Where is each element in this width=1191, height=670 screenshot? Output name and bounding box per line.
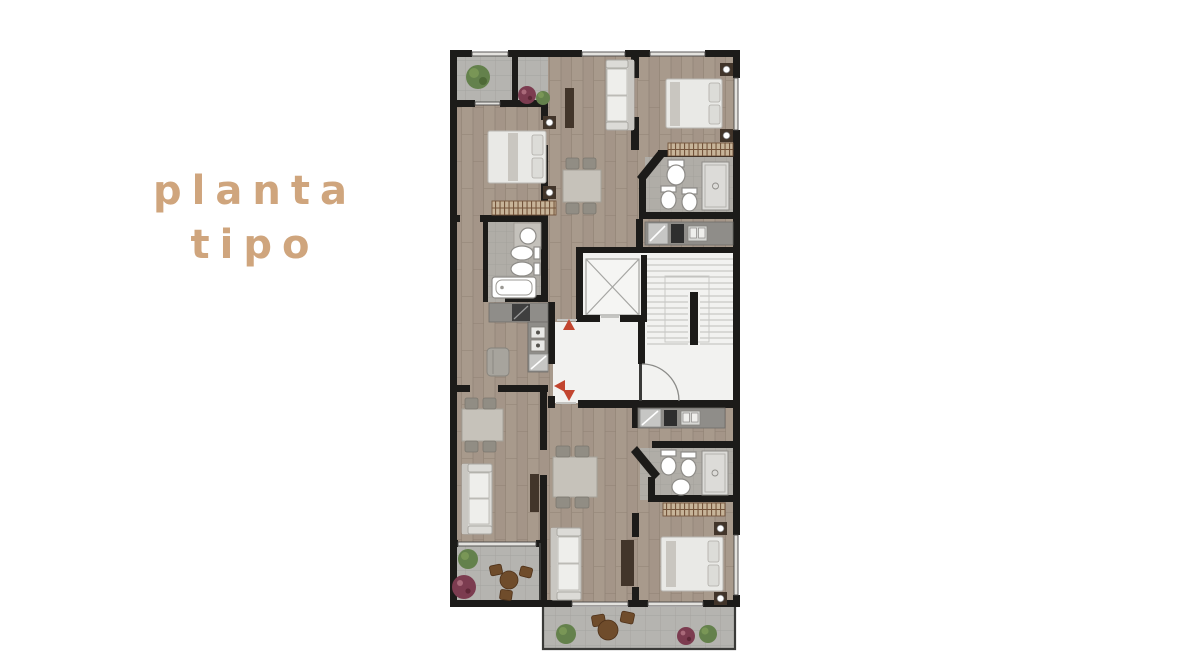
wall-terrace-bottom-a: [455, 100, 475, 107]
lamp: [723, 132, 730, 139]
plant-highlight: [469, 68, 479, 78]
sofa-left-cushion-a: [469, 473, 489, 498]
sofa-left-arm-a: [468, 464, 492, 472]
wall-core-north: [576, 247, 737, 253]
wall-terrace-divider: [512, 57, 518, 100]
sink-2: [667, 165, 685, 185]
wall-bed1-bottom-a: [455, 215, 460, 222]
door-leaf: [639, 364, 642, 401]
outdoor-chair: [620, 611, 635, 624]
plant-purple: [452, 575, 476, 599]
sofa-center-cushion-b: [558, 564, 579, 590]
wall-landing-east: [638, 322, 645, 364]
tv-console-left: [530, 474, 539, 512]
elevator: [586, 259, 639, 315]
toilet-3b-tank: [681, 452, 696, 458]
outdoor-chair: [499, 589, 512, 601]
sofa-upper-cushion-a: [607, 69, 627, 95]
wall-bath3-south: [650, 495, 733, 502]
plant-highlight: [559, 627, 567, 635]
sink-3: [672, 479, 690, 495]
toilet-2a: [661, 191, 676, 209]
sofa-left-back: [462, 464, 468, 534]
dining-chair: [575, 497, 589, 508]
toilet-3a: [661, 457, 676, 475]
wall-top-a: [450, 50, 472, 57]
plant: [458, 549, 478, 569]
dining-chair: [566, 203, 579, 214]
sink-basin: [699, 228, 706, 238]
window-bed3-right: [734, 535, 738, 595]
sink-basin: [690, 228, 697, 238]
lamp: [717, 525, 724, 532]
bidet-left: [511, 262, 533, 276]
threshold-lower-unit: [556, 402, 576, 404]
window-bed2-right: [734, 78, 738, 130]
sofa-left-cushion-b: [469, 499, 489, 524]
window-living3-bottom: [572, 602, 628, 606]
wall-kitchen-left-east: [548, 302, 555, 322]
plant-highlight: [538, 92, 544, 98]
dining-chair: [465, 398, 478, 409]
wall-bath2-south: [639, 212, 733, 219]
plant: [699, 625, 717, 643]
plant-purple: [518, 86, 536, 104]
wall-balconybl-north-a: [450, 540, 458, 547]
stove-3: [664, 410, 677, 426]
dining-chair: [483, 398, 496, 409]
plant-purple-dot: [687, 637, 691, 641]
plant-purple-dot: [465, 588, 470, 593]
dining-table-upper: [563, 170, 601, 202]
outdoor-table: [598, 620, 618, 640]
lamp: [717, 595, 724, 602]
kitchen-lower-right: [638, 408, 725, 428]
threshold-elevator: [601, 316, 619, 318]
wall-bath-left-west: [483, 222, 488, 302]
toilet-2b: [682, 193, 697, 211]
dining-chair: [583, 203, 596, 214]
dining-table-center: [553, 457, 597, 497]
threshold-upper-unit: [557, 319, 577, 321]
shower-3: [702, 451, 728, 495]
lamp: [723, 66, 730, 73]
wall-lower-divider-b: [540, 475, 547, 600]
burner-b-knob: [536, 344, 540, 348]
wall-elevator-east: [641, 255, 647, 322]
bed-2-pillow-b: [709, 105, 720, 124]
wall-top-b: [508, 50, 582, 57]
bed-1-pillow-b: [532, 158, 543, 178]
bed-3-pillow-b: [708, 565, 719, 586]
outdoor-chair: [489, 564, 503, 576]
window-terrace-door: [475, 102, 500, 105]
plant-shadow: [479, 77, 487, 85]
sofa-center-cushion-a: [558, 537, 579, 563]
window-bed3-bottom: [648, 602, 703, 606]
window-living-top: [582, 52, 625, 56]
sofa-center-back: [551, 528, 557, 600]
toilet-3b: [681, 459, 696, 477]
dining-table-left: [462, 409, 503, 441]
toilet-3a-tank: [661, 450, 676, 456]
bed-3-blanket: [666, 541, 676, 587]
plant-purple-dot: [457, 580, 463, 586]
dining-chair: [483, 441, 496, 452]
wall-balconybl-north-b: [536, 540, 547, 547]
sofa-upper-cushion-b: [607, 96, 627, 121]
tv-console-center: [621, 540, 634, 586]
wall-right-a: [733, 50, 740, 78]
plant-purple: [677, 627, 695, 645]
wall-elevator-west: [576, 253, 583, 322]
outdoor-table: [500, 571, 518, 589]
sofa-center-arm-a: [557, 528, 581, 536]
bed-3-pillow-a: [708, 541, 719, 562]
wall-landing-west-b: [548, 396, 555, 408]
wall-left: [450, 50, 457, 607]
plant: [466, 65, 490, 89]
stove-2: [671, 224, 684, 243]
wall-bath-left-east: [541, 222, 548, 302]
dining-chair: [556, 497, 570, 508]
tv-console-upper: [565, 88, 574, 128]
window-bed2-top: [650, 52, 705, 56]
toilet-left: [511, 246, 533, 260]
kitchen-top-right: [645, 222, 733, 245]
plant-purple-dot: [522, 90, 527, 95]
sink-basin: [692, 413, 699, 422]
bathtub-drain: [500, 286, 504, 290]
wall-elevator-south-a: [576, 315, 600, 322]
wall-kitchen2-west: [636, 219, 643, 253]
dining-chair: [566, 158, 579, 169]
stair-divider-wall: [690, 292, 698, 345]
plant-highlight: [701, 627, 708, 634]
burner-a-knob: [536, 331, 540, 335]
bed-2-blanket: [670, 82, 680, 126]
window-terrace: [472, 52, 508, 56]
wall-bottom-a: [450, 600, 542, 607]
bed-1-pillow-a: [532, 135, 543, 155]
wall-bed1-bottom-b: [480, 215, 548, 222]
wall-core-south: [578, 400, 737, 408]
wall-lower-divider-a: [540, 392, 547, 450]
sofa-left-arm-b: [468, 526, 492, 534]
wall-landing-west-a: [548, 322, 555, 364]
shower-2: [702, 162, 729, 210]
sofa-upper-back: [628, 60, 634, 130]
lamp: [546, 189, 553, 196]
plant-purple-dot: [681, 631, 686, 636]
wall-elevator-south-b: [620, 315, 647, 322]
bed-2-pillow-a: [709, 83, 720, 102]
lamp: [546, 119, 553, 126]
plant-purple-dot: [528, 96, 532, 100]
wall-kitchen3-west: [632, 406, 638, 428]
plant-highlight: [461, 552, 469, 560]
kitchen-armchair: [487, 348, 509, 376]
wall-bottom-b: [542, 600, 572, 607]
wall-right-b: [733, 130, 740, 535]
sofa-center-arm-b: [557, 592, 581, 600]
wall-unit-divider-left-b: [498, 385, 548, 392]
dining-chair: [583, 158, 596, 169]
wall-bed3-west-a: [632, 513, 639, 537]
dining-chair: [556, 446, 570, 457]
sofa-upper-arm-a: [606, 60, 628, 68]
dining-chair: [465, 441, 478, 452]
floor-plan: [0, 0, 1191, 670]
sofa-upper-arm-b: [606, 122, 628, 130]
toilet-left-tank: [534, 247, 540, 259]
bed-1-blanket: [508, 133, 518, 181]
sink-basin: [683, 413, 690, 422]
dining-chair: [575, 446, 589, 457]
wall-bath3-north: [652, 441, 733, 448]
wall-unit-divider-left-a: [455, 385, 470, 392]
wall-bed3-west-b: [632, 587, 639, 603]
window-balconybl: [458, 542, 536, 546]
bidet-left-tank: [534, 263, 540, 275]
sink-left: [520, 228, 536, 244]
plant: [556, 624, 576, 644]
